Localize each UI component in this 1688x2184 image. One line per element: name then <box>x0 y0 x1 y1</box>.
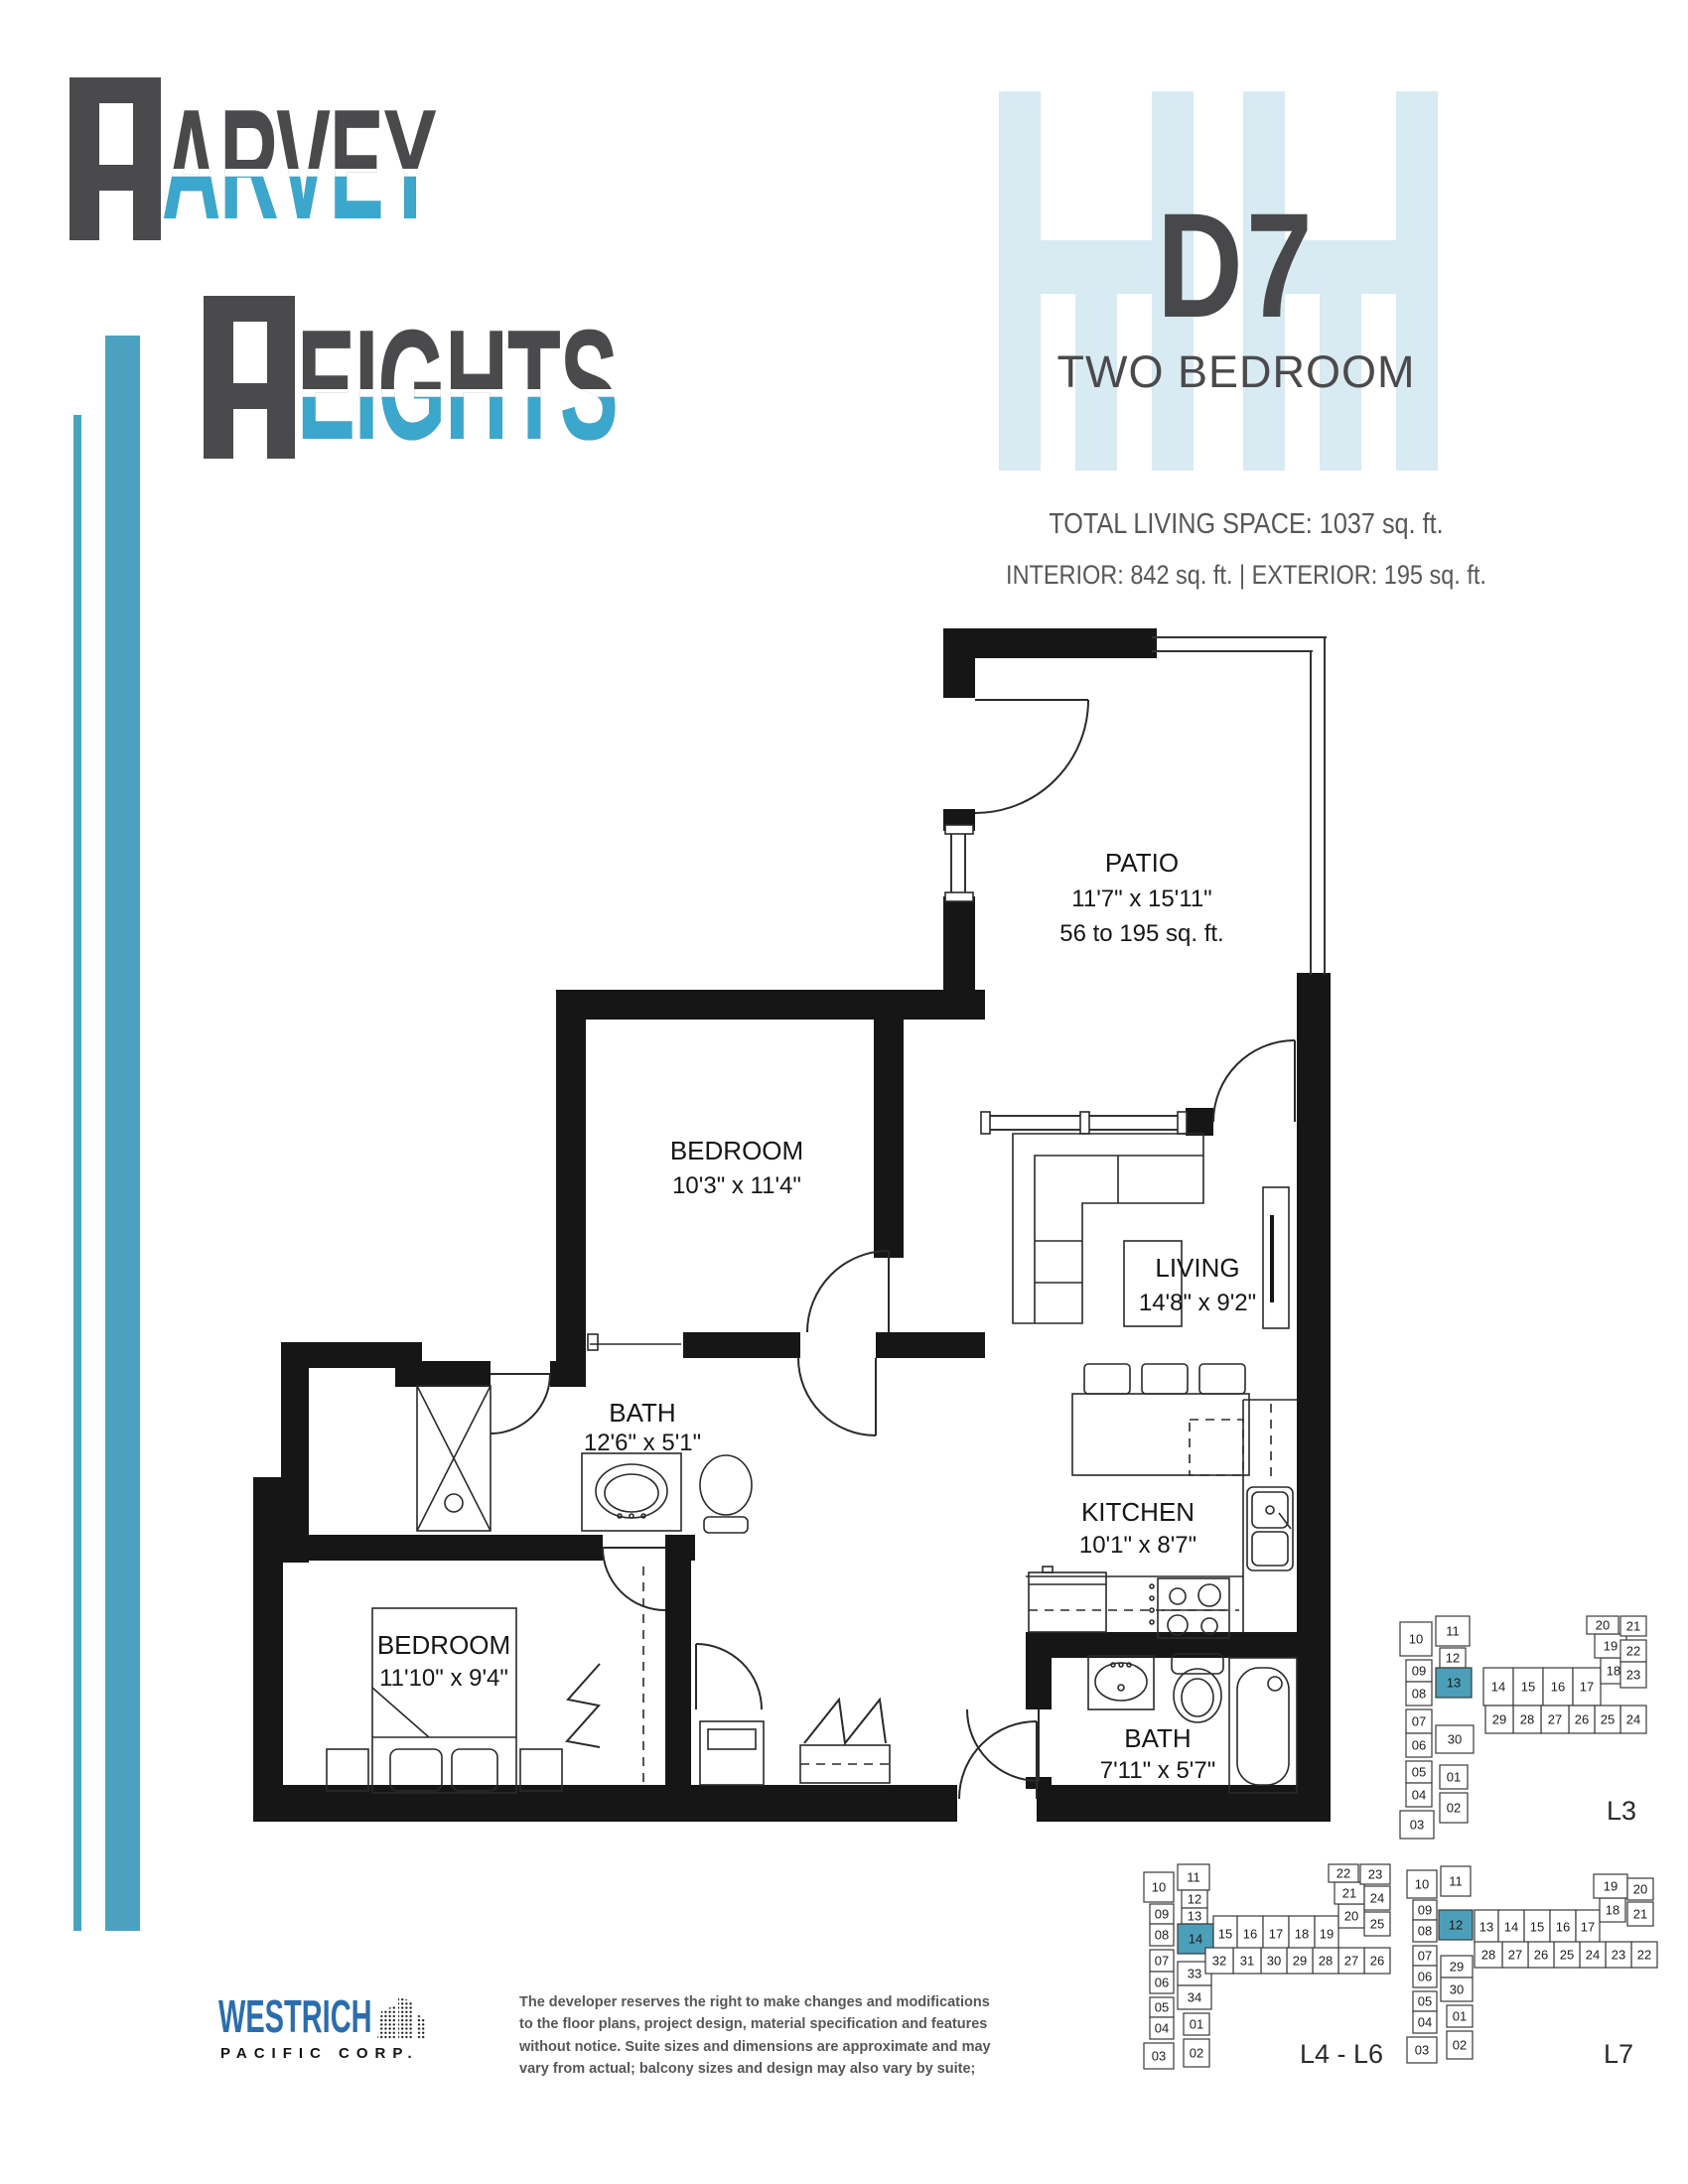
keyplan-unit-number: 19 <box>1604 1879 1618 1894</box>
logo-initial-h-harvey <box>70 77 161 240</box>
keyplan-unit-number: 29 <box>1293 1954 1307 1969</box>
keyplan-unit-number: 14 <box>1491 1680 1505 1695</box>
keyplan-unit-number: 20 <box>1596 1618 1610 1633</box>
keyplan-unit-number: 16 <box>1556 1920 1570 1935</box>
keyplan-l4-l6-label: L4 - L6 <box>1300 2039 1383 2069</box>
keyplan-unit-number: 21 <box>1633 1907 1647 1922</box>
keyplan-unit-number: 24 <box>1370 1891 1384 1906</box>
keyplan-unit-number: 04 <box>1412 1788 1426 1803</box>
keyplan-unit-number: 13 <box>1479 1920 1493 1935</box>
keyplan-unit-number: 06 <box>1155 1976 1169 1990</box>
keyplan-unit-number: 18 <box>1295 1927 1309 1942</box>
keyplan-unit-number: 25 <box>1370 1917 1384 1932</box>
label-bedroom1: BEDROOM <box>670 1136 803 1165</box>
keyplan-unit-number: 10 <box>1415 1877 1429 1892</box>
label-bath2-dims: 7'11" x 5'7" <box>1100 1757 1216 1784</box>
unit-code: D7 <box>1042 191 1431 340</box>
total-living-space: TOTAL LIVING SPACE: 1037 sq. ft. <box>987 510 1505 539</box>
label-bath2: BATH <box>1124 1723 1191 1753</box>
accent-stripe-thin <box>73 415 81 1931</box>
keyplan-unit-number: 11 <box>1187 1870 1200 1885</box>
keyplan-unit-number: 11 <box>1449 1874 1463 1889</box>
developer-subtitle: PACIFIC CORP. <box>220 2045 419 2062</box>
keyplan-unit-number: 03 <box>1152 2049 1166 2064</box>
keyplan-unit-number: 14 <box>1189 1932 1202 1947</box>
keyplan-unit-number: 06 <box>1418 1970 1432 1984</box>
label-living: LIVING <box>1155 1253 1239 1283</box>
developer-buildings-icon <box>375 1993 429 2043</box>
logo-initial-h-heights <box>204 296 295 459</box>
keyplan-unit-number: 08 <box>1155 1928 1169 1943</box>
keyplan-unit-number: 16 <box>1243 1927 1257 1942</box>
keyplan-unit-number: 28 <box>1520 1712 1534 1727</box>
keyplan-unit-number: 27 <box>1508 1948 1522 1963</box>
keyplan-unit-number: 10 <box>1409 1632 1423 1647</box>
keyplan-unit-number: 07 <box>1155 1954 1169 1969</box>
keyplan-unit-number: 30 <box>1450 1982 1464 1997</box>
label-bedroom2-dims: 11'10" x 9'4" <box>379 1665 508 1692</box>
keyplan-unit-number: 17 <box>1269 1927 1283 1942</box>
keyplan-unit-number: 06 <box>1412 1738 1426 1753</box>
keyplan-unit-number: 10 <box>1152 1880 1166 1895</box>
keyplan-unit-number: 05 <box>1155 2000 1169 2015</box>
keyplan-unit-number: 26 <box>1370 1954 1384 1969</box>
keyplan-unit-number: 08 <box>1412 1687 1426 1702</box>
keyplan-unit-number: 18 <box>1607 1664 1620 1679</box>
keyplan-unit-number: 11 <box>1446 1624 1460 1639</box>
label-bedroom2: BEDROOM <box>377 1630 510 1660</box>
keyplan-unit-number: 08 <box>1418 1924 1432 1939</box>
keyplan-unit-number: 17 <box>1580 1680 1594 1695</box>
keyplan-unit-number: 33 <box>1188 1967 1201 1981</box>
keyplan-unit-number: 28 <box>1481 1948 1495 1963</box>
keyplan-unit-number: 22 <box>1626 1644 1640 1659</box>
label-kitchen-dims: 10'1" x 8'7" <box>1079 1532 1196 1559</box>
keyplan-l7-cells: 1011090812070605040329300102131415161718… <box>1407 1866 1657 2063</box>
keyplan-unit-number: 30 <box>1267 1954 1281 1969</box>
developer-logo: WESTRICH <box>218 1993 372 2039</box>
keyplan-unit-number: 24 <box>1626 1712 1640 1727</box>
keyplan-unit-number: 04 <box>1418 2015 1432 2030</box>
keyplan-unit-number: 23 <box>1626 1668 1640 1683</box>
keyplan-l4-l6: 1011091213081407060504033334010215161718… <box>1132 1854 1410 2083</box>
keyplan-unit-number: 07 <box>1412 1714 1426 1729</box>
keyplan-unit-number: 16 <box>1551 1680 1565 1695</box>
keyplan-unit-number: 29 <box>1450 1960 1464 1975</box>
keyplan-unit-number: 03 <box>1410 1818 1424 1833</box>
keyplan-unit-number: 09 <box>1155 1907 1169 1922</box>
keyplan-unit-number: 12 <box>1449 1918 1463 1933</box>
keyplan-unit-number: 23 <box>1368 1867 1382 1882</box>
label-patio: PATIO <box>1105 848 1179 878</box>
keyplan-unit-number: 22 <box>1637 1948 1651 1963</box>
keyplan-unit-number: 20 <box>1344 1909 1358 1924</box>
keyplan-unit-number: 26 <box>1575 1712 1589 1727</box>
keyplan-unit-number: 05 <box>1418 1994 1432 2009</box>
keyplan-unit-number: 27 <box>1344 1954 1358 1969</box>
keyplan-unit-number: 12 <box>1188 1892 1201 1907</box>
keyplan-unit-number: 17 <box>1581 1920 1595 1935</box>
keyplan-unit-number: 01 <box>1190 2017 1203 2032</box>
keyplan-unit-number: 21 <box>1626 1619 1640 1634</box>
label-bath1: BATH <box>609 1398 675 1428</box>
keyplan-unit-number: 03 <box>1415 2043 1429 2058</box>
keyplan-unit-number: 31 <box>1240 1954 1254 1969</box>
logo-word-harvey: ARVEY ARVEY ARVEY <box>162 86 436 243</box>
keyplan-unit-number: 02 <box>1447 1801 1461 1816</box>
disclaimer-text: The developer reserves the right to make… <box>519 1991 994 2081</box>
keyplan-unit-number: 25 <box>1601 1712 1615 1727</box>
keyplan-unit-number: 09 <box>1418 1903 1432 1918</box>
furniture-layer <box>327 1134 1297 1793</box>
label-living-dims: 14'8" x 9'2" <box>1139 1290 1256 1316</box>
keyplan-unit-number: 22 <box>1336 1866 1350 1881</box>
logo-word-heights: EIGHTS EIGHTS EIGHTS <box>297 307 618 464</box>
label-kitchen: KITCHEN <box>1081 1497 1195 1527</box>
keyplan-unit-number: 24 <box>1586 1948 1600 1963</box>
keyplan-unit-number: 19 <box>1320 1927 1334 1942</box>
interior-exterior: INTERIOR: 842 sq. ft. | EXTERIOR: 195 sq… <box>987 562 1505 589</box>
keyplan-unit-number: 15 <box>1530 1920 1544 1935</box>
keyplan-l3: 1011091213080706050403300102141516171819… <box>1388 1606 1656 1844</box>
keyplan-unit-number: 07 <box>1418 1949 1432 1964</box>
keyplan-unit-number: 02 <box>1190 2046 1203 2061</box>
keyplan-unit-number: 15 <box>1521 1680 1535 1695</box>
keyplan-unit-number: 32 <box>1212 1954 1226 1969</box>
keyplan-unit-number: 21 <box>1342 1886 1356 1901</box>
keyplan-unit-number: 23 <box>1612 1948 1625 1963</box>
keyplan-l7: 1011090812070605040329300102131415161718… <box>1395 1854 1673 2083</box>
keyplan-l3-label: L3 <box>1607 1796 1636 1826</box>
keyplan-unit-number: 19 <box>1604 1639 1618 1654</box>
keyplan-unit-number: 28 <box>1319 1954 1333 1969</box>
keyplan-unit-number: 01 <box>1447 1770 1461 1785</box>
keyplan-unit-number: 20 <box>1633 1882 1647 1897</box>
keyplan-unit-number: 18 <box>1606 1903 1619 1918</box>
label-patio-extra: 56 to 195 sq. ft. <box>1059 920 1223 947</box>
keyplan-unit-number: 25 <box>1560 1948 1574 1963</box>
keyplan-unit-number: 04 <box>1155 2021 1169 2036</box>
floorplan-sheet: ARVEY ARVEY ARVEY EIGHTS EIGHTS EIGHTS D… <box>0 0 1688 2184</box>
keyplan-unit-number: 13 <box>1188 1909 1201 1924</box>
keyplan-unit-number: 02 <box>1453 2038 1467 2053</box>
keyplan-unit-number: 14 <box>1504 1920 1518 1935</box>
keyplan-unit-number: 13 <box>1447 1676 1461 1691</box>
keyplan-unit-number: 05 <box>1412 1765 1426 1780</box>
keyplan-unit-number: 01 <box>1453 2009 1467 2024</box>
label-bath1-dims: 12'6" x 5'1" <box>584 1430 701 1456</box>
keyplan-l7-label: L7 <box>1604 2039 1633 2069</box>
keyplan-unit-number: 15 <box>1218 1927 1232 1942</box>
keyplan-unit-number: 09 <box>1412 1664 1426 1679</box>
keyplan-unit-number: 29 <box>1492 1712 1506 1727</box>
keyplan-unit-number: 30 <box>1448 1732 1462 1747</box>
keyplan-unit-number: 34 <box>1188 1990 1201 2005</box>
keyplan-unit-number: 26 <box>1534 1948 1548 1963</box>
label-bedroom1-dims: 10'3" x 11'4" <box>672 1172 801 1199</box>
floor-plan: PATIO 11'7" x 15'11" 56 to 195 sq. ft. B… <box>248 611 1340 1837</box>
label-patio-dims: 11'7" x 15'11" <box>1071 886 1211 912</box>
keyplan-unit-number: 12 <box>1446 1651 1460 1666</box>
keyplan-unit-number: 27 <box>1548 1712 1562 1727</box>
accent-stripe-wide <box>105 336 140 1931</box>
unit-type: TWO BEDROOM <box>993 349 1479 394</box>
